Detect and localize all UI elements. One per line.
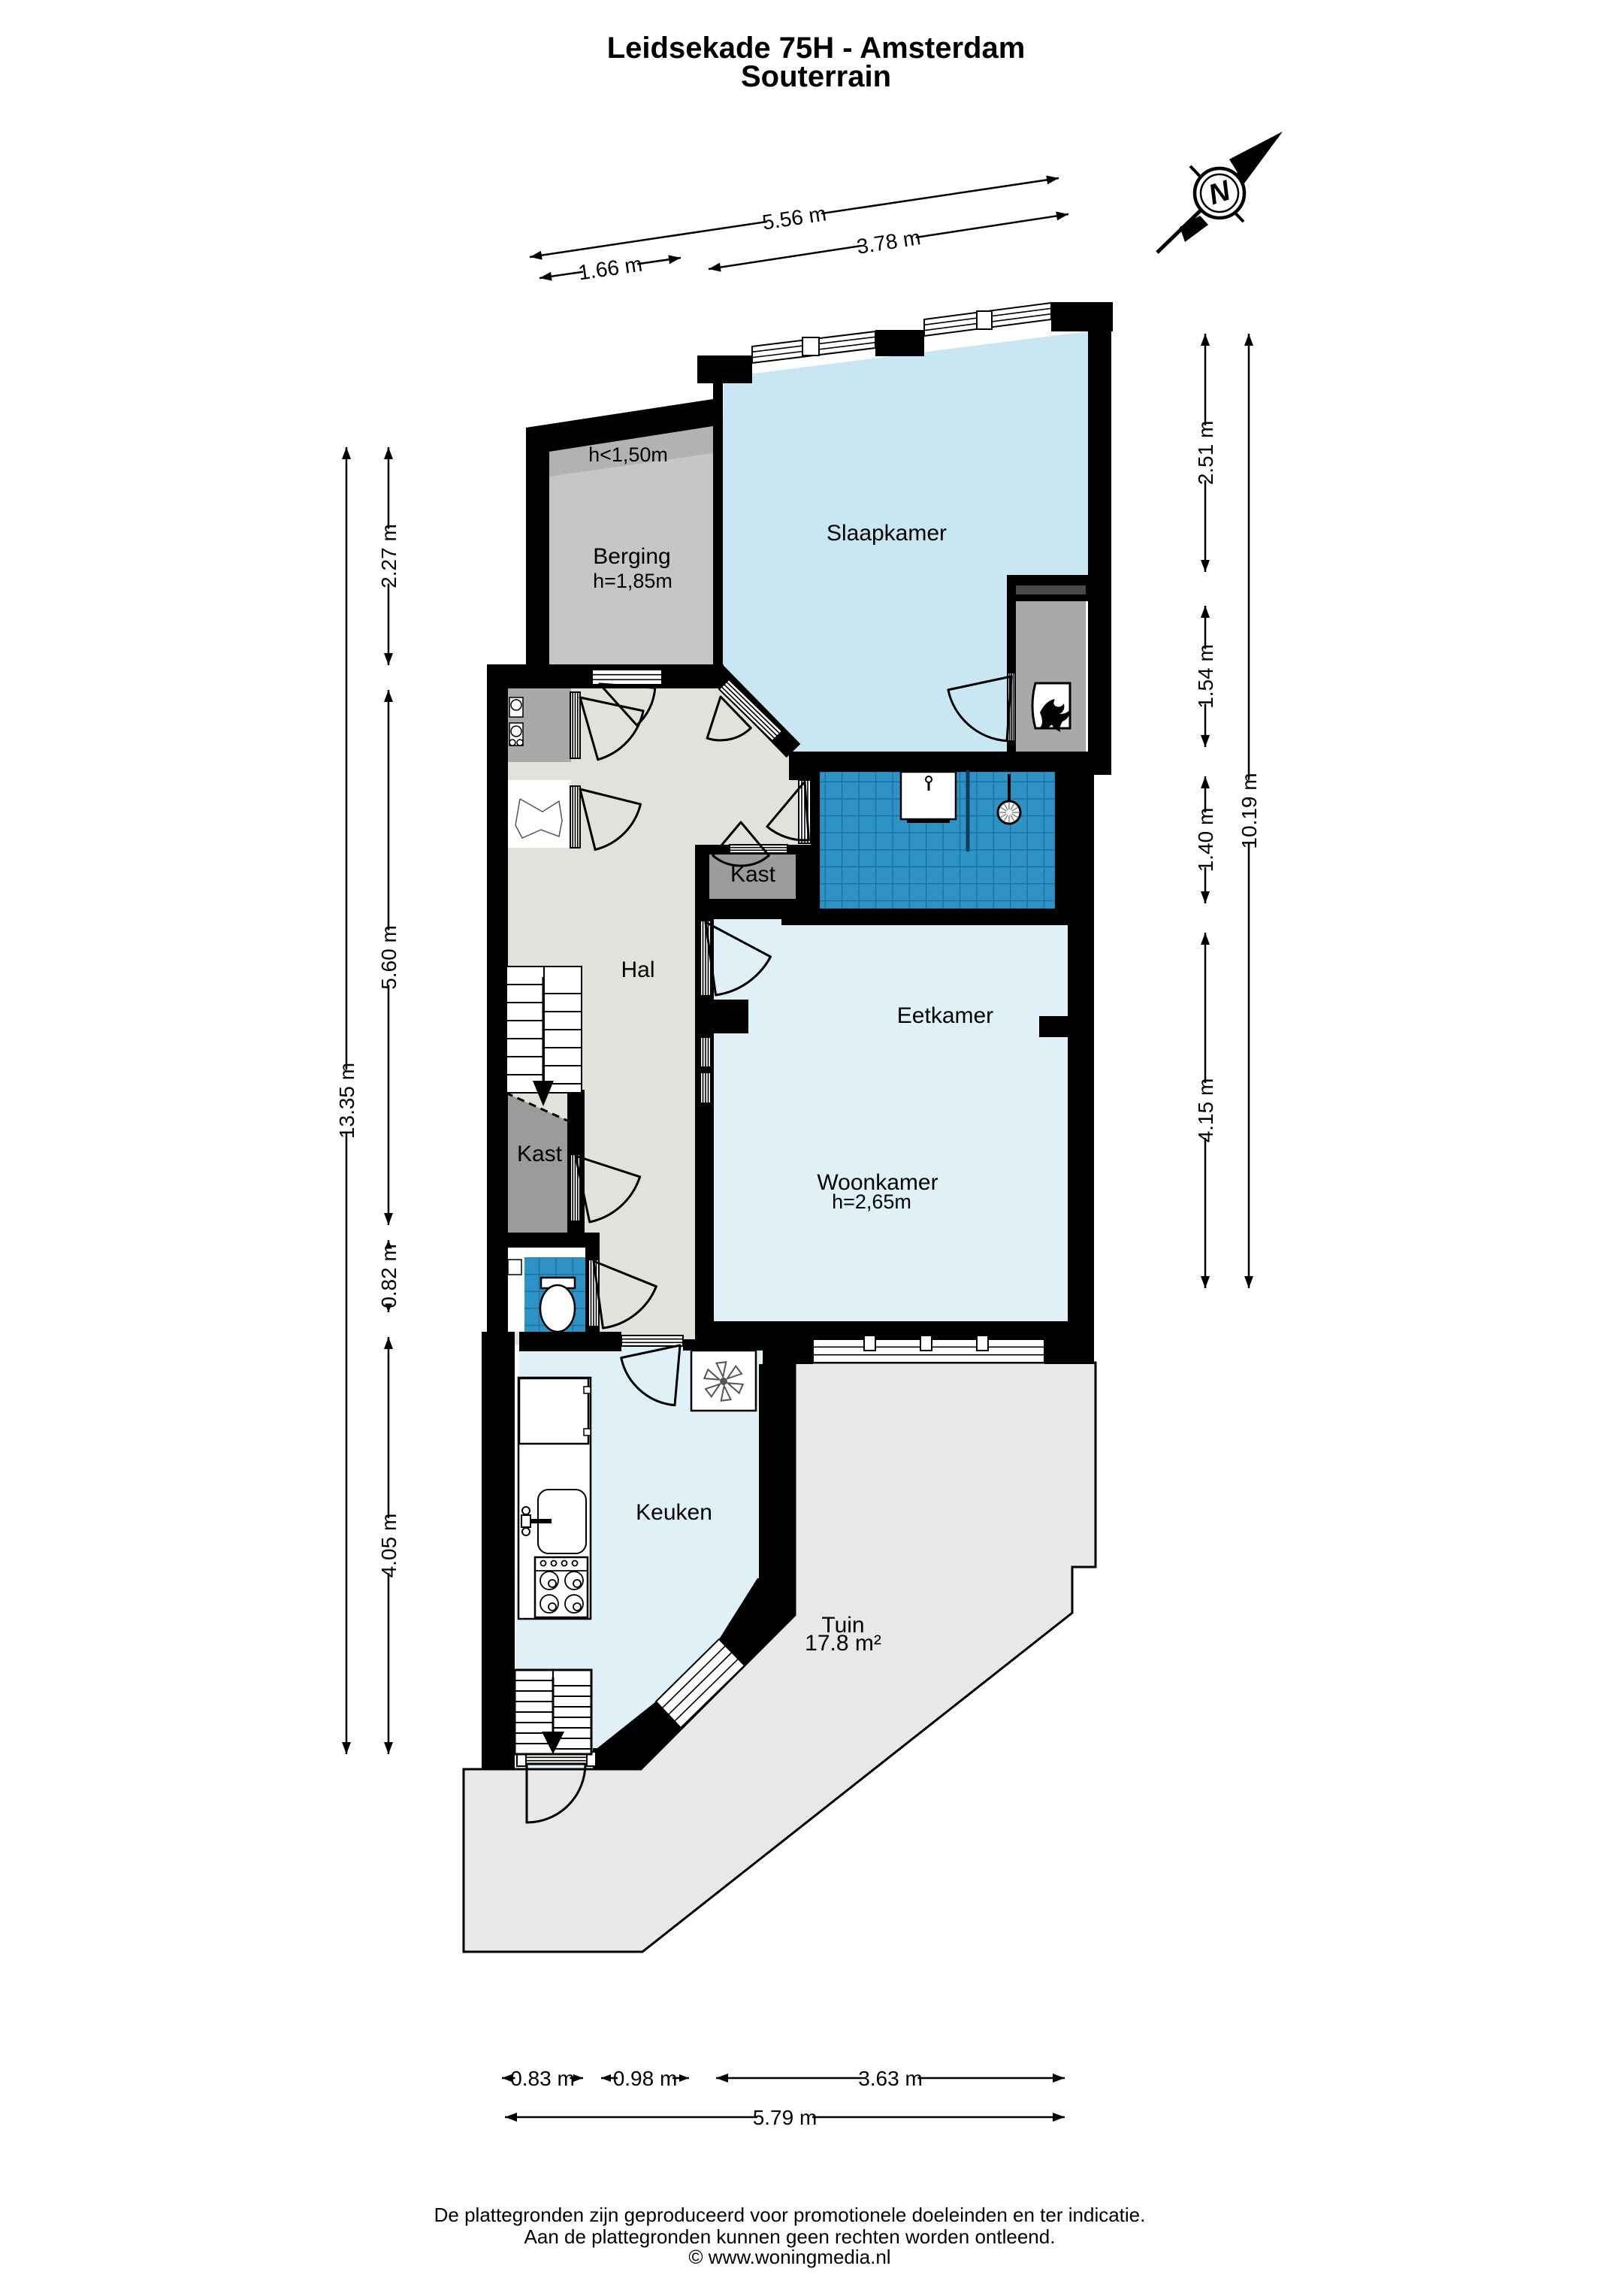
svg-text:0.83 m: 0.83 m (510, 2067, 575, 2090)
svg-text:3.63 m: 3.63 m (858, 2067, 923, 2090)
svg-text:Hal: Hal (621, 957, 654, 982)
svg-text:© www.woningmedia.nl: © www.woningmedia.nl (688, 2246, 890, 2268)
svg-text:2.27 m: 2.27 m (377, 524, 400, 588)
svg-text:1.54 m: 1.54 m (1194, 644, 1217, 709)
svg-text:0.82 m: 0.82 m (377, 1244, 400, 1308)
svg-text:13.35 m: 13.35 m (335, 1063, 358, 1139)
svg-text:Slaapkamer: Slaapkamer (827, 521, 947, 546)
svg-text:5.79 m: 5.79 m (753, 2106, 818, 2129)
svg-text:h=1,85m: h=1,85m (593, 570, 672, 592)
svg-text:4.05 m: 4.05 m (377, 1514, 400, 1578)
svg-text:h<1,50m: h<1,50m (588, 443, 668, 466)
svg-text:5.60 m: 5.60 m (377, 925, 400, 990)
svg-text:10.19 m: 10.19 m (1238, 773, 1261, 849)
svg-text:Eetkamer: Eetkamer (897, 1003, 993, 1028)
svg-text:Berging: Berging (593, 544, 670, 569)
svg-text:Aan de plattegronden kunnen ge: Aan de plattegronden kunnen geen rechten… (524, 2225, 1056, 2248)
svg-text:4.15 m: 4.15 m (1194, 1078, 1217, 1143)
svg-text:0.98 m: 0.98 m (613, 2067, 678, 2090)
svg-text:Keuken: Keuken (636, 1500, 712, 1525)
svg-text:17.8 m²: 17.8 m² (805, 1631, 881, 1656)
svg-text:Kast: Kast (517, 1142, 563, 1166)
svg-text:De plattegronden zijn geproduc: De plattegronden zijn geproduceerd voor … (434, 2204, 1146, 2226)
svg-text:h=2,65m: h=2,65m (832, 1190, 911, 1213)
svg-text:Kast: Kast (730, 862, 776, 887)
svg-text:2.51 m: 2.51 m (1194, 421, 1217, 486)
svg-text:1.40 m: 1.40 m (1194, 808, 1217, 873)
svg-text:Souterrain: Souterrain (741, 60, 891, 93)
